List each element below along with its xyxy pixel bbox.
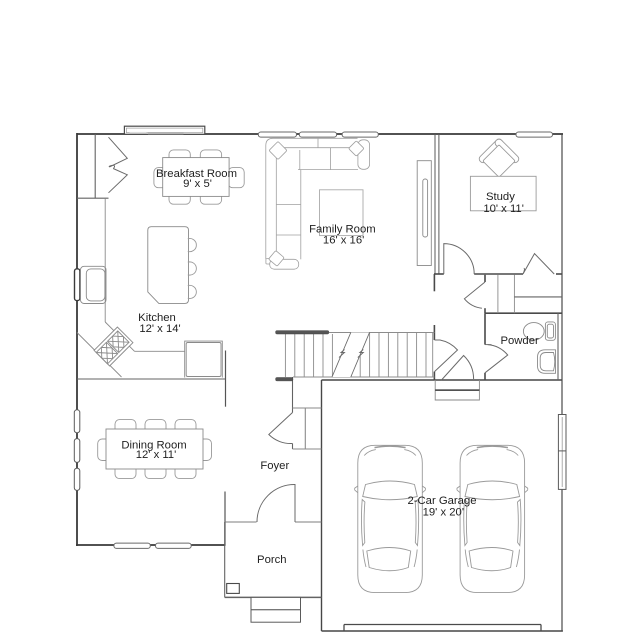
svg-text:19' x 20': 19' x 20' [423, 506, 464, 518]
svg-text:12' x 11': 12' x 11' [136, 449, 177, 461]
svg-text:Porch: Porch [257, 554, 287, 566]
svg-text:2-Car Garage: 2-Car Garage [407, 495, 476, 507]
svg-text:Powder: Powder [500, 335, 539, 347]
svg-text:10' x 11': 10' x 11' [483, 203, 524, 215]
svg-text:16' x 16': 16' x 16' [323, 234, 364, 246]
svg-text:12' x 14': 12' x 14' [139, 323, 180, 335]
svg-text:Foyer: Foyer [260, 460, 289, 472]
svg-text:Study: Study [486, 191, 515, 203]
svg-text:9' x 5': 9' x 5' [183, 178, 212, 190]
svg-text:Kitchen: Kitchen [138, 312, 176, 324]
